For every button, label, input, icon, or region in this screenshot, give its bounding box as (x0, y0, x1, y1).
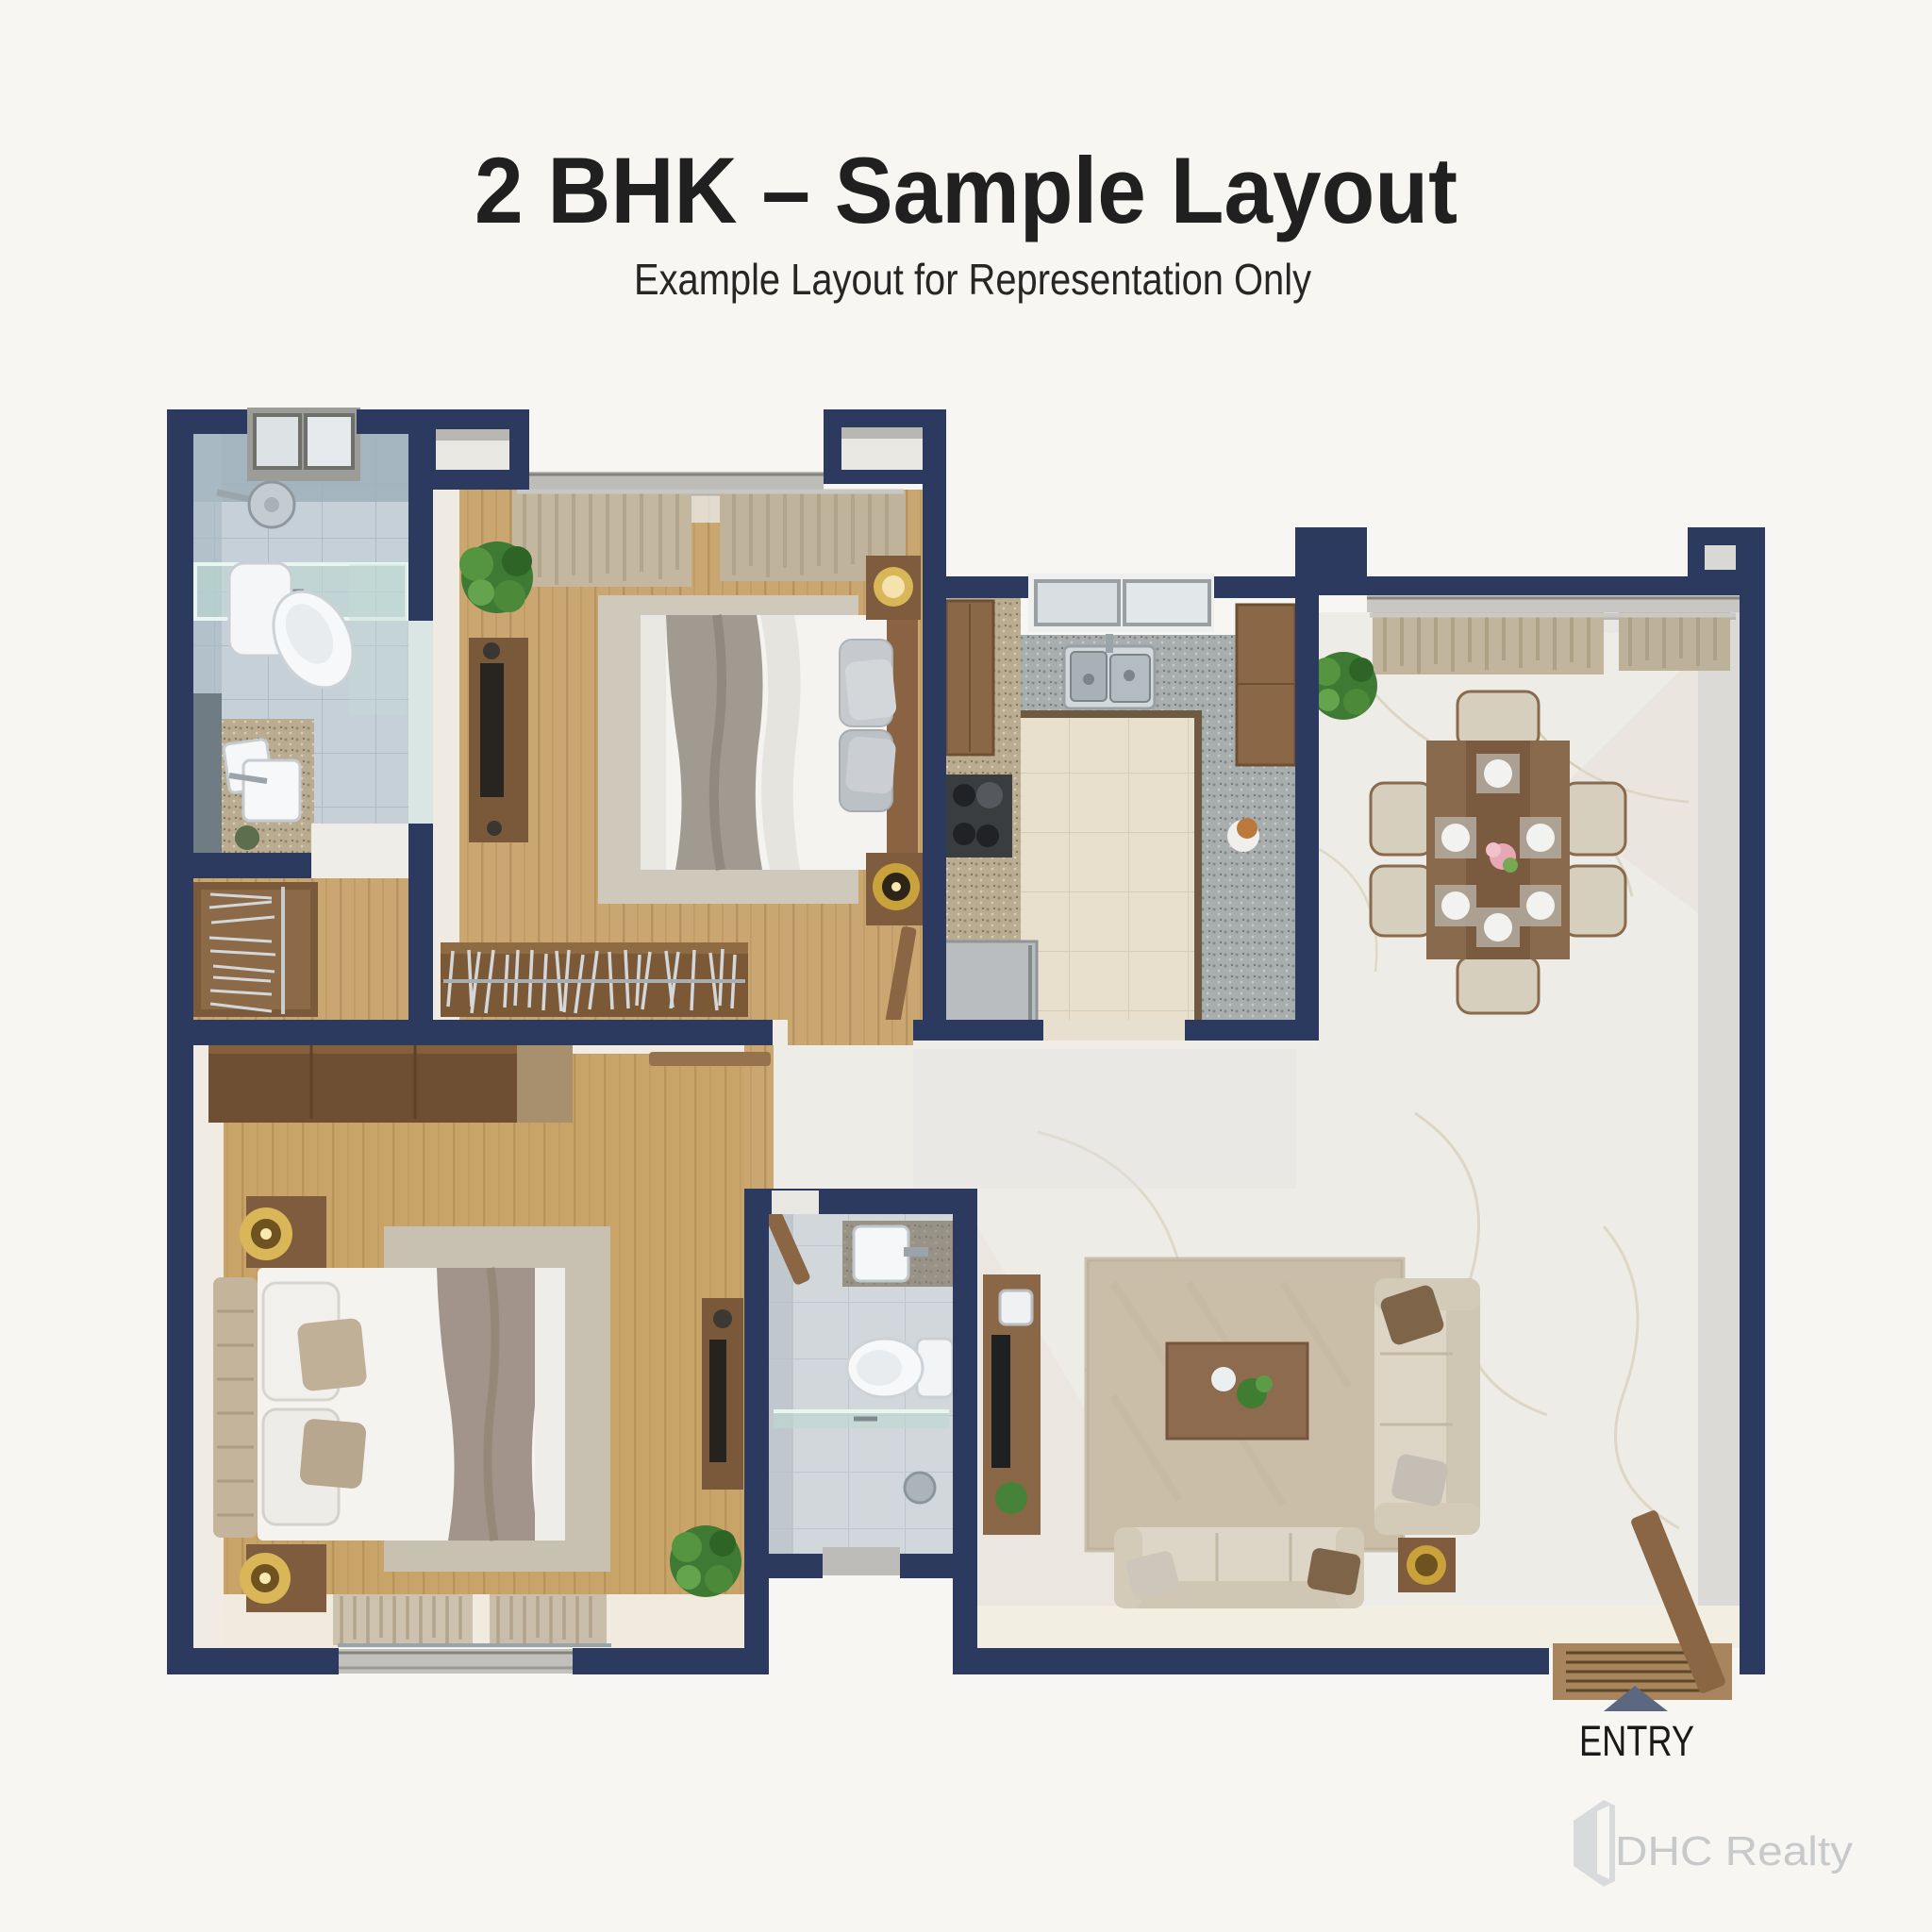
svg-text:2 BHK – Sample Layout: 2 BHK – Sample Layout (475, 138, 1457, 242)
svg-text:DHC Realty: DHC Realty (1615, 1828, 1853, 1874)
svg-text:Example Layout for Representat: Example Layout for Representation Only (634, 255, 1311, 304)
svg-text:ENTRY: ENTRY (1579, 1717, 1694, 1765)
